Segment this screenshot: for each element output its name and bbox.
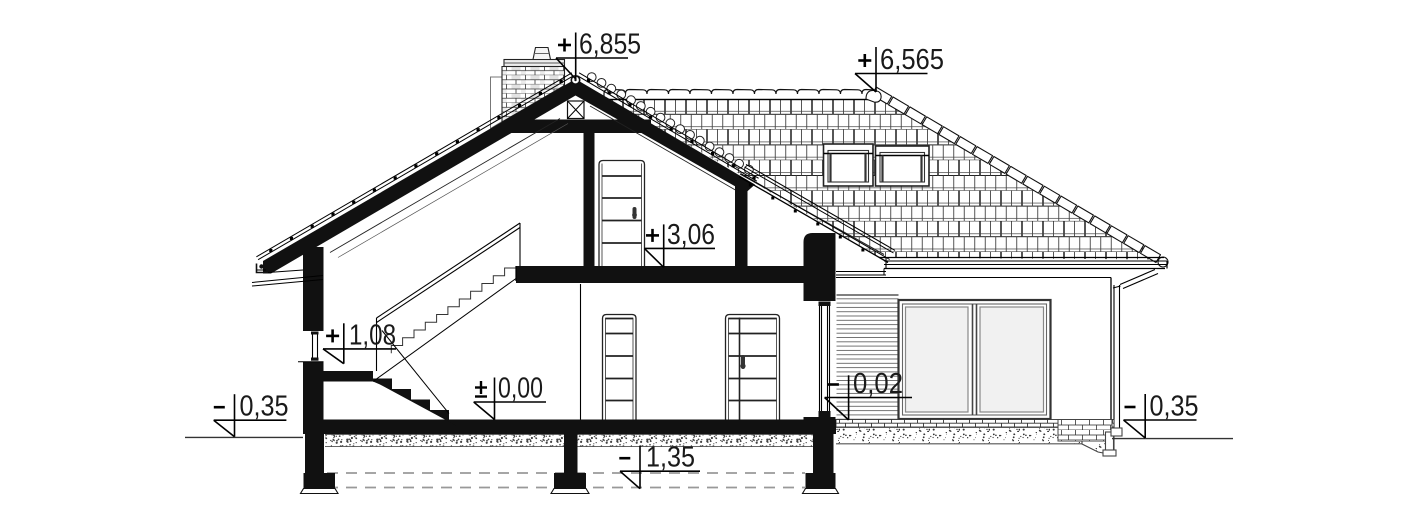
svg-text:1,08: 1,08 xyxy=(349,319,396,351)
svg-text:3,06: 3,06 xyxy=(667,219,715,251)
svg-text:0,00: 0,00 xyxy=(498,373,543,405)
svg-text:6,565: 6,565 xyxy=(880,44,944,76)
svg-text:0,02: 0,02 xyxy=(853,368,903,400)
svg-text:0,35: 0,35 xyxy=(240,391,289,423)
svg-text:0,35: 0,35 xyxy=(1150,391,1199,423)
svg-text:1,35: 1,35 xyxy=(646,442,695,474)
svg-text:6,855: 6,855 xyxy=(579,29,641,61)
